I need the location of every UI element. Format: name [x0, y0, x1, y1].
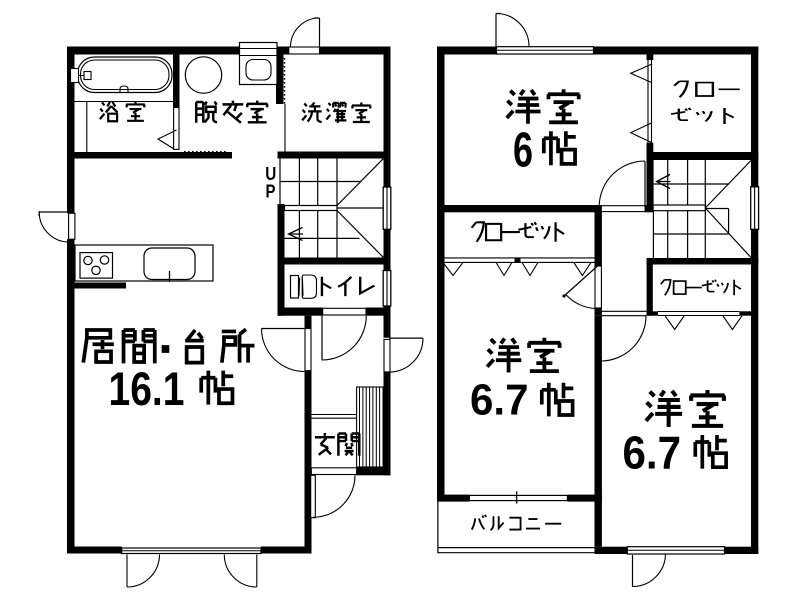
svg-text:P: P	[266, 181, 276, 202]
svg-text:6: 6	[513, 124, 533, 178]
svg-text:6.7: 6.7	[470, 376, 529, 425]
svg-text:16.1: 16.1	[109, 363, 185, 416]
svg-text:6.7: 6.7	[623, 427, 682, 479]
